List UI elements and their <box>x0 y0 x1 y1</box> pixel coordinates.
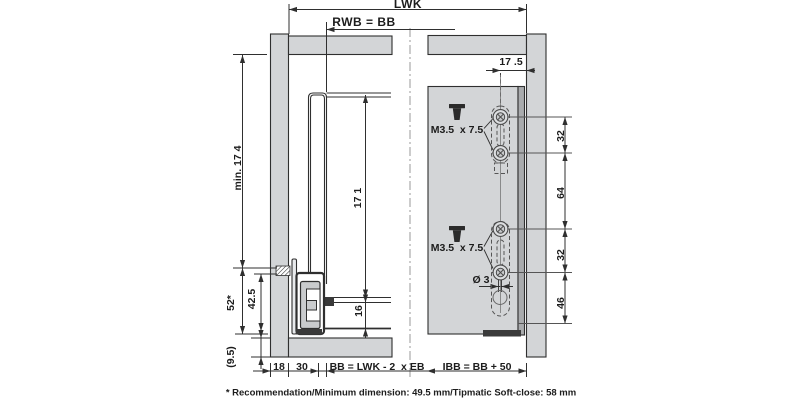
cabinet-bottom-panel-left <box>289 338 393 357</box>
screw-hole <box>493 265 508 280</box>
dim-42-5: 42.5 <box>247 289 258 309</box>
runner-profile-midbar <box>307 301 317 311</box>
dim-rwb-bb: RWB = BB <box>332 16 395 28</box>
dim-lwk: LWK <box>394 0 422 10</box>
dim-18: 18 <box>273 362 285 373</box>
cabinet-top-panel-left <box>289 36 393 55</box>
drawer-side-edge-strip <box>518 87 525 336</box>
dim-hole-dia: Ø 3 <box>473 275 490 286</box>
dim-17-5: 17 .5 <box>499 57 522 68</box>
screw-spec-upper: M3.5 x 7.5 <box>431 125 484 136</box>
dim-recess-16: 16 <box>354 305 365 317</box>
drawer-bottom-step <box>325 297 335 306</box>
screw-hole <box>493 146 508 161</box>
dim-52-star: 52* <box>226 295 237 311</box>
dim-bb-formula: BB = LWK - 2 x EB <box>330 362 425 373</box>
dim-9-5: (9.5) <box>226 346 237 368</box>
mounting-screw-section <box>276 266 290 276</box>
technical-drawing-page: LWK RWB = BB min. 17 4 17 1 16 52* 42.5 … <box>0 0 800 400</box>
drawer-bottom-rear-edge <box>483 330 521 337</box>
screw-spec-lower: M3.5 x 7.5 <box>431 243 484 254</box>
dim-pitch-32a: 32 <box>556 130 567 142</box>
cabinet-side-panel-left <box>271 34 289 357</box>
screw-hole <box>493 222 508 237</box>
drawer-side-profile-inner <box>311 95 325 284</box>
runner-bottom-flange <box>296 329 322 335</box>
drawer-side-profile-outer <box>309 93 327 284</box>
dim-min-height: min. 17 4 <box>233 146 244 191</box>
cabinet-side-panel-right <box>527 34 547 357</box>
screw-hole <box>493 110 508 125</box>
dim-ibb-formula: IBB = BB + 50 <box>443 362 512 373</box>
dim-pitch-64: 64 <box>556 187 567 199</box>
cabinet-top-panel-right <box>428 36 527 55</box>
dim-pitch-46: 46 <box>556 297 567 309</box>
left-view <box>271 34 393 357</box>
drawing-canvas <box>0 0 800 400</box>
right-view <box>428 34 546 357</box>
dim-back-height: 17 1 <box>353 188 364 208</box>
dim-pitch-32b: 32 <box>556 249 567 261</box>
dim-30: 30 <box>296 362 308 373</box>
footnote: * Recommendation/Minimum dimension: 49.5… <box>226 388 576 398</box>
